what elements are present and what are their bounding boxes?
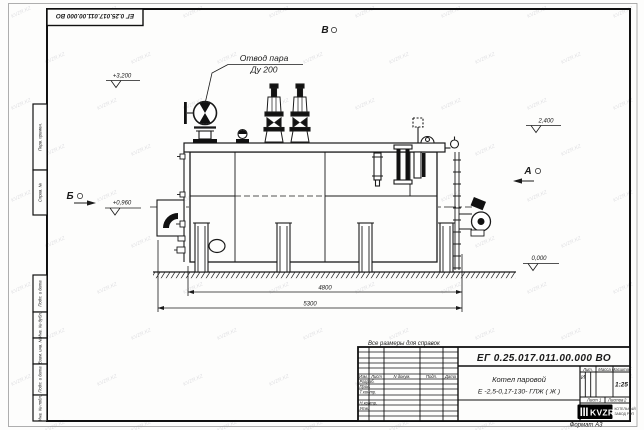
format-note: Формат А3: [570, 423, 603, 429]
watermark-text: KVZR.KZ: [354, 281, 377, 296]
watermark-text: KVZR.KZ: [302, 51, 325, 66]
elevation-0960: +0,960: [105, 201, 141, 216]
fan-unit: [459, 197, 491, 236]
col-ndoc: N докум.: [394, 374, 411, 379]
rear-elbow: [445, 137, 459, 149]
watermark-text: KVZR.KZ: [10, 5, 33, 20]
row-prov: Пров.: [360, 384, 371, 389]
drawing-sheet: KVZR.KZKVZR.KZKVZR.KZKVZR.KZKVZR.KZKVZR.…: [0, 0, 644, 430]
support-leg: [193, 223, 210, 272]
masshtab-value: 1:25: [615, 382, 628, 389]
watermark-text: KVZR.KZ: [10, 281, 33, 296]
watermark-text: KVZR.KZ: [354, 5, 377, 20]
stamp-label: Подп. и дата: [38, 366, 43, 393]
watermark-text: KVZR.KZ: [612, 281, 635, 296]
watermark-text: KVZR.KZ: [216, 327, 239, 342]
gauge-dome: [421, 137, 434, 144]
drawing-canvas: KVZR.KZKVZR.KZKVZR.KZKVZR.KZKVZR.KZKVZR.…: [0, 0, 644, 430]
ground-line: [153, 272, 516, 278]
stamp-label: Перв. примен.: [38, 123, 43, 151]
watermark-text: KVZR.KZ: [560, 51, 583, 66]
fan-motor-icon: [471, 197, 486, 210]
logo-stripes-icon: [581, 408, 588, 417]
view-mark-b-left: Б: [66, 191, 96, 206]
svg-text:В: В: [321, 25, 328, 36]
burner-unit: [157, 200, 184, 236]
handwheel-icon: [184, 102, 187, 124]
row-nkontr: Н.контр.: [360, 400, 378, 405]
watermark-text: KVZR.KZ: [560, 143, 583, 158]
stamp-label: Подп. и дата: [38, 280, 43, 307]
elevation-0000: 0,000: [523, 256, 559, 271]
watermark-text: KVZR.KZ: [474, 51, 497, 66]
watermark-text: KVZR.KZ: [526, 281, 549, 296]
watermark-text: KVZR.KZ: [130, 327, 153, 342]
watermark-text: KVZR.KZ: [526, 189, 549, 204]
row-tkontr: Т.контр.: [360, 390, 377, 395]
logo-subtext-1: КОТЕЛЬНЫЙ: [615, 407, 637, 411]
watermark-text: KVZR.KZ: [302, 327, 325, 342]
flipped-designation-box: ЕГ 0.25.017.011.00.000 ВО: [47, 9, 143, 26]
watermark-text: KVZR.KZ: [216, 51, 239, 66]
steam-note-line2: Ду 200: [250, 65, 278, 75]
vent-pipe: [413, 118, 423, 143]
watermark-text: KVZR.KZ: [96, 281, 119, 296]
svg-text:А: А: [523, 166, 531, 177]
support-leg: [275, 223, 292, 272]
lit-value: И: [581, 375, 585, 381]
dim-text-4800: 4800: [318, 286, 332, 292]
list-label: Лист: [586, 398, 598, 403]
watermark-text: KVZR.KZ: [130, 51, 153, 66]
watermark-text: KVZR.KZ: [560, 327, 583, 342]
logo-subtext-2: ЗАВОД РЭП: [615, 412, 635, 416]
svg-text:+3,200: +3,200: [113, 74, 132, 80]
massa-label: Масса: [598, 367, 611, 372]
watermark-text: KVZR.KZ: [388, 51, 411, 66]
listov-label: Листов: [607, 398, 624, 403]
lit-label: Лит.: [582, 367, 593, 372]
title-block: ЕГ 0.25.017.011.00.000 ВО Котел паровой …: [358, 347, 636, 421]
watermark-text: KVZR.KZ: [10, 97, 33, 112]
flipped-designation-text: ЕГ 0.25.017.011.00.000 ВО: [56, 12, 134, 19]
dim-text-5300: 5300: [303, 302, 317, 308]
masshtab-label: Масштаб: [612, 367, 632, 372]
drum-small-valve: [236, 130, 249, 144]
support-leg: [357, 223, 374, 272]
watermark-text: KVZR.KZ: [612, 189, 635, 204]
product-name-line2: Е -2,5-0,17-130- ГЛЖ ( Ж ): [478, 389, 560, 396]
col-data: Дата: [444, 374, 457, 379]
watermark-text: KVZR.KZ: [526, 97, 549, 112]
row-utv: Утв.: [360, 406, 370, 411]
watermark-text: KVZR.KZ: [182, 281, 205, 296]
stamp-label: Инв. № подл.: [38, 395, 43, 421]
watermark-text: KVZR.KZ: [96, 97, 119, 112]
watermark-text: KVZR.KZ: [354, 97, 377, 112]
steam-note-line1: Отвод пара: [240, 53, 289, 63]
logo-text: KVZR: [590, 407, 614, 417]
watermark-text: KVZR.KZ: [96, 373, 119, 388]
watermark-text: KVZR.KZ: [440, 281, 463, 296]
elevation-3200: +3,200: [106, 74, 140, 88]
col-podp: Подп.: [426, 374, 437, 379]
svg-text:Б: Б: [66, 191, 73, 202]
watermark-text: KVZR.KZ: [10, 189, 33, 204]
watermark-text: KVZR.KZ: [130, 235, 153, 250]
watermark-text: KVZR.KZ: [10, 373, 33, 388]
watermark-text: KVZR.KZ: [182, 5, 205, 20]
watermark-text: KVZR.KZ: [474, 143, 497, 158]
watermark-text: KVZR.KZ: [440, 97, 463, 112]
watermark-text: KVZR.KZ: [612, 5, 635, 20]
view-mark-a-right: А: [513, 166, 541, 184]
view-mark-v-top: В: [321, 25, 336, 36]
product-name-line1: Котел паровой: [492, 375, 547, 384]
watermark-text: KVZR.KZ: [268, 281, 291, 296]
stamp-label: Инв. № дубл.: [38, 312, 43, 338]
watermark-text: KVZR.KZ: [612, 97, 635, 112]
safety-valve: [290, 84, 310, 142]
watermark-text: KVZR.KZ: [560, 235, 583, 250]
watermark-text: KVZR.KZ: [268, 5, 291, 20]
watermark-text: KVZR.KZ: [474, 327, 497, 342]
watermark-text: KVZR.KZ: [268, 373, 291, 388]
safety-valve: [264, 84, 284, 142]
watermark-text: KVZR.KZ: [440, 5, 463, 20]
watermark-text: KVZR.KZ: [474, 235, 497, 250]
watermark-text: KVZR.KZ: [388, 327, 411, 342]
support-leg: [438, 223, 455, 272]
stamp-label: Справ. №: [38, 183, 43, 202]
elevation-2400: 2,400: [526, 119, 561, 133]
titleblock-designation: ЕГ 0.25.017.011.00.000 ВО: [477, 353, 611, 364]
stamp-label: Взам. инв. №: [38, 338, 43, 364]
svg-text:2,400: 2,400: [537, 119, 554, 125]
svg-text:0,000: 0,000: [531, 256, 547, 262]
list-value: 1: [599, 398, 601, 403]
svg-text:+0,960: +0,960: [113, 201, 132, 207]
watermark-text: KVZR.KZ: [182, 373, 205, 388]
rear-ladder: [453, 152, 461, 270]
watermark-text: KVZR.KZ: [526, 5, 549, 20]
boiler-drawing: [150, 84, 516, 278]
watermark-text: KVZR.KZ: [130, 143, 153, 158]
